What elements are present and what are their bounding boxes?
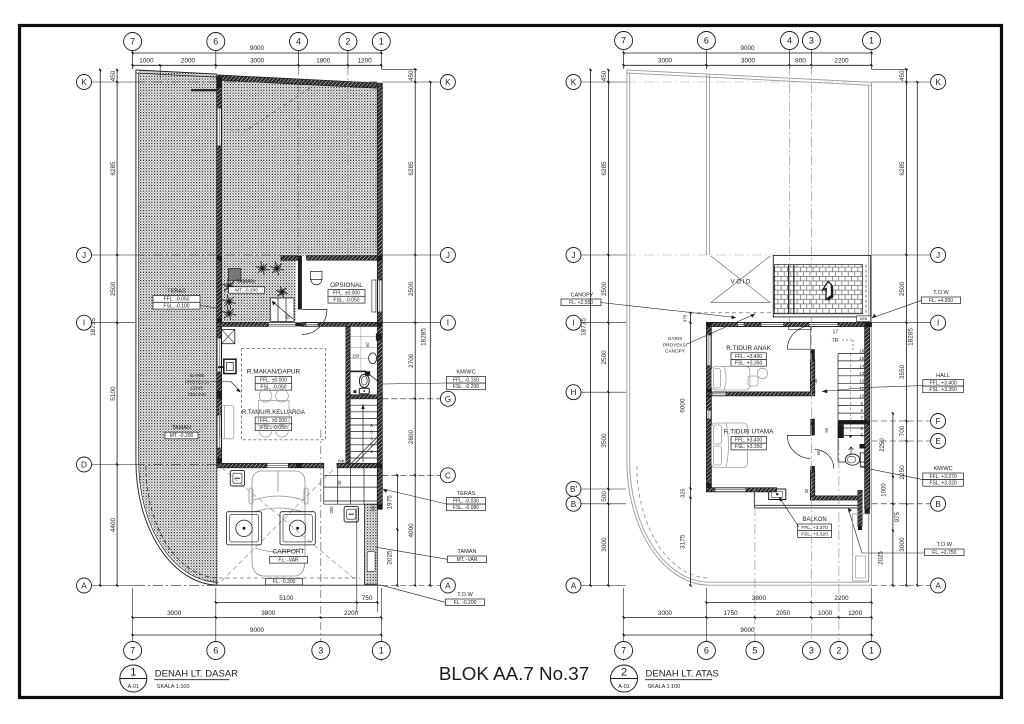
svg-text:3175: 3175 <box>680 534 687 549</box>
svg-text:4000: 4000 <box>408 523 415 538</box>
svg-text:6285: 6285 <box>601 161 608 176</box>
svg-text:K: K <box>445 78 451 87</box>
svg-text:6: 6 <box>704 36 709 46</box>
svg-text:CEILING: CEILING <box>188 392 207 397</box>
svg-text:9: 9 <box>861 401 864 406</box>
svg-text:2: 2 <box>836 646 841 656</box>
svg-text:150: 150 <box>352 354 360 359</box>
svg-text:375: 375 <box>683 314 688 322</box>
svg-text:300: 300 <box>371 504 376 512</box>
svg-text:5: 5 <box>752 646 757 656</box>
svg-text:3000: 3000 <box>741 58 756 65</box>
svg-text:C: C <box>445 471 451 480</box>
svg-text:PROYEKSI: PROYEKSI <box>185 379 209 384</box>
svg-text:J: J <box>82 251 86 260</box>
svg-text:1750: 1750 <box>723 610 738 617</box>
svg-text:2250: 2250 <box>899 465 906 480</box>
svg-text:SKALA 1:100: SKALA 1:100 <box>648 684 681 690</box>
svg-text:FL. +4.950: FL. +4.950 <box>929 298 953 304</box>
svg-text:50: 50 <box>286 314 291 319</box>
svg-text:FSL. -0.200: FSL. -0.200 <box>453 384 479 390</box>
svg-text:B: B <box>571 500 577 509</box>
svg-text:1000: 1000 <box>882 483 888 497</box>
svg-text:J: J <box>571 251 575 260</box>
svg-text:FL. -0.200: FL. -0.200 <box>454 600 477 606</box>
svg-text:OPSIONAL: OPSIONAL <box>330 282 363 289</box>
svg-text:3800: 3800 <box>752 595 767 602</box>
svg-text:450: 450 <box>601 70 608 81</box>
svg-text:1: 1 <box>379 37 384 47</box>
svg-text:A: A <box>445 582 451 591</box>
svg-text:30: 30 <box>804 488 809 493</box>
svg-text:4: 4 <box>787 36 792 46</box>
svg-text:K: K <box>81 78 87 87</box>
svg-text:FFL. -0.150: FFL. -0.150 <box>453 377 479 383</box>
svg-text:3000: 3000 <box>601 537 608 552</box>
svg-text:FL. -VAR: FL. -VAR <box>278 557 299 563</box>
svg-text:4400: 4400 <box>110 517 117 532</box>
svg-text:18285: 18285 <box>420 328 427 346</box>
svg-text:2500: 2500 <box>601 350 608 365</box>
svg-text:FSL. +3.350: FSL. +3.350 <box>735 361 763 367</box>
svg-text:6285: 6285 <box>899 161 906 176</box>
svg-text:MSN: MSN <box>860 317 868 321</box>
svg-text:1000: 1000 <box>818 610 833 617</box>
svg-text:F: F <box>936 417 941 426</box>
svg-text:16: 16 <box>859 349 865 354</box>
svg-text:B': B' <box>570 485 577 494</box>
svg-text:A: A <box>935 582 941 591</box>
svg-text:3000: 3000 <box>658 610 673 617</box>
svg-text:A: A <box>81 582 87 591</box>
svg-text:TAMAN: TAMAN <box>236 279 255 285</box>
svg-text:I: I <box>572 319 574 328</box>
svg-text:CANOPY: CANOPY <box>665 349 686 354</box>
svg-text:10: 10 <box>859 393 865 398</box>
svg-text:GARIS: GARIS <box>668 336 683 341</box>
svg-text:TAMAN: TAMAN <box>457 549 476 555</box>
svg-text:8: 8 <box>861 408 864 413</box>
svg-text:2: 2 <box>345 37 350 47</box>
svg-text:11: 11 <box>859 386 864 391</box>
svg-text:5100: 5100 <box>279 595 294 602</box>
svg-text:2025: 2025 <box>879 551 885 565</box>
svg-text:PROYEKSI: PROYEKSI <box>663 342 687 347</box>
svg-text:500: 500 <box>601 491 608 502</box>
svg-text:2250: 2250 <box>880 438 886 452</box>
svg-text:1200: 1200 <box>848 610 863 617</box>
svg-text:450: 450 <box>110 70 117 81</box>
svg-text:R.TIDUR UTAMA: R.TIDUR UTAMA <box>724 429 774 436</box>
svg-text:6: 6 <box>704 646 709 656</box>
svg-text:200: 200 <box>329 506 334 514</box>
svg-text:MT. -0.200: MT. -0.200 <box>235 288 258 294</box>
svg-text:R.MAKAN/DAPUR: R.MAKAN/DAPUR <box>247 369 301 376</box>
svg-text:A-01: A-01 <box>618 684 629 690</box>
svg-text:1800: 1800 <box>316 58 331 65</box>
svg-text:TAMAN: TAMAN <box>172 425 191 431</box>
svg-text:50: 50 <box>365 342 370 347</box>
svg-text:325: 325 <box>681 489 687 498</box>
svg-text:1: 1 <box>130 666 136 678</box>
svg-text:HALL: HALL <box>936 373 950 379</box>
svg-text:3550: 3550 <box>899 364 906 379</box>
svg-text:3000: 3000 <box>167 610 182 617</box>
svg-text:750: 750 <box>362 595 373 602</box>
svg-text:FFL. +3.370: FFL. +3.370 <box>930 474 957 480</box>
svg-text:14: 14 <box>859 364 865 369</box>
svg-text:450: 450 <box>899 70 906 81</box>
svg-text:H: H <box>571 388 577 397</box>
svg-text:7: 7 <box>130 37 135 47</box>
svg-text:3800: 3800 <box>261 610 276 617</box>
svg-text:6: 6 <box>213 646 218 656</box>
svg-text:4: 4 <box>296 37 301 47</box>
svg-text:J: J <box>936 251 940 260</box>
svg-text:3: 3 <box>318 646 323 656</box>
svg-text:700: 700 <box>899 425 906 436</box>
svg-text:9000: 9000 <box>740 627 755 634</box>
svg-text:A: A <box>571 582 577 591</box>
svg-text:2700: 2700 <box>408 353 415 368</box>
svg-text:4: 4 <box>370 436 373 441</box>
svg-text:FFL. +3.400: FFL. +3.400 <box>735 438 762 444</box>
svg-text:B: B <box>935 500 941 509</box>
svg-text:CARPORT: CARPORT <box>272 549 304 556</box>
svg-text:T.O.W: T.O.W <box>457 592 473 598</box>
svg-text:FFL. -0.030: FFL. -0.030 <box>453 498 479 504</box>
svg-text:DENAH LT. ATAS: DENAH LT. ATAS <box>646 669 719 680</box>
svg-text:6: 6 <box>861 426 864 431</box>
svg-text:J: J <box>446 251 450 260</box>
svg-text:SKALA 1:100: SKALA 1:100 <box>157 684 190 690</box>
svg-text:FFL. ±0.000: FFL. ±0.000 <box>260 378 287 384</box>
svg-text:3500: 3500 <box>601 433 608 448</box>
svg-text:BLOK AA.7 No.37: BLOK AA.7 No.37 <box>439 663 589 684</box>
svg-text:2200: 2200 <box>344 610 359 617</box>
svg-text:6: 6 <box>370 423 373 428</box>
svg-text:FSL. -0.050: FSL. -0.050 <box>333 297 359 303</box>
svg-text:7: 7 <box>130 646 135 656</box>
svg-text:KM/WC: KM/WC <box>456 370 475 376</box>
svg-text:I: I <box>83 319 85 328</box>
svg-text:TERAS: TERAS <box>457 491 476 497</box>
svg-text:R.TAMU/R.KELUARGA: R.TAMU/R.KELUARGA <box>242 410 305 416</box>
svg-text:15: 15 <box>859 356 865 361</box>
svg-text:E: E <box>935 437 941 446</box>
svg-text:FFL. ±0.000: FFL. ±0.000 <box>260 418 287 424</box>
svg-text:9000: 9000 <box>250 627 265 634</box>
svg-text:FSL. -0.100: FSL. -0.100 <box>163 303 189 309</box>
svg-text:V O I D: V O I D <box>731 280 751 286</box>
svg-text:T.O.W: T.O.W <box>937 542 953 548</box>
svg-text:K: K <box>935 78 941 87</box>
svg-text:800: 800 <box>795 58 806 65</box>
svg-text:1: 1 <box>869 646 874 656</box>
svg-text:2500: 2500 <box>408 281 415 296</box>
svg-text:7: 7 <box>621 646 626 656</box>
svg-text:2025: 2025 <box>386 550 393 565</box>
svg-text:30: 30 <box>337 480 342 485</box>
svg-text:7: 7 <box>621 36 626 46</box>
svg-text:BALKON: BALKON <box>802 517 826 523</box>
svg-text:9000: 9000 <box>740 45 755 52</box>
svg-text:FL. +2.750: FL. +2.750 <box>932 550 956 556</box>
svg-text:1: 1 <box>869 36 874 46</box>
svg-text:6285: 6285 <box>110 161 117 176</box>
svg-text:3000: 3000 <box>658 58 673 65</box>
svg-text:2: 2 <box>621 666 627 678</box>
svg-text:FFL. +3.400: FFL. +3.400 <box>930 380 957 386</box>
svg-text:FSL. -0.080: FSL. -0.080 <box>453 505 479 511</box>
svg-text:GARIS: GARIS <box>190 373 205 378</box>
svg-text:2050: 2050 <box>776 610 791 617</box>
svg-text:FSL. +3.350: FSL. +3.350 <box>735 444 763 450</box>
svg-text:3000: 3000 <box>899 537 906 552</box>
svg-text:1975: 1975 <box>386 495 393 510</box>
svg-text:450: 450 <box>408 70 415 81</box>
svg-text:18285: 18285 <box>907 328 914 346</box>
svg-text:I: I <box>447 319 449 328</box>
svg-text:FL. -0.300: FL. -0.300 <box>273 579 296 585</box>
svg-text:975: 975 <box>895 512 901 523</box>
svg-text:K: K <box>571 78 577 87</box>
svg-text:6: 6 <box>213 37 218 47</box>
svg-text:6000: 6000 <box>680 398 687 413</box>
svg-text:2: 2 <box>370 449 373 454</box>
svg-text:2800: 2800 <box>408 430 415 445</box>
svg-text:5: 5 <box>861 433 864 438</box>
svg-text:12: 12 <box>859 378 865 383</box>
svg-text:2500: 2500 <box>110 281 117 296</box>
svg-text:17: 17 <box>833 329 839 335</box>
svg-text:FFL. -0.050: FFL. -0.050 <box>164 297 190 303</box>
svg-text:1200: 1200 <box>357 58 372 65</box>
svg-text:T.O.W: T.O.W <box>933 290 949 296</box>
svg-text:2500: 2500 <box>601 281 608 296</box>
svg-text:FSL. +3.320: FSL. +3.320 <box>929 481 957 487</box>
svg-text:FFL. +3.370: FFL. +3.370 <box>801 525 828 531</box>
svg-text:FFL. ±0.000: FFL. ±0.000 <box>333 291 360 297</box>
svg-text:A-01: A-01 <box>128 684 139 690</box>
svg-text:5100: 5100 <box>110 386 117 401</box>
svg-text:30: 30 <box>813 378 818 383</box>
svg-text:I: I <box>937 319 939 328</box>
svg-text:TR: TR <box>832 338 839 344</box>
svg-text:D: D <box>81 461 87 470</box>
svg-text:2500: 2500 <box>899 281 906 296</box>
svg-text:2200: 2200 <box>834 58 849 65</box>
svg-text:2000: 2000 <box>181 58 196 65</box>
svg-text:2200: 2200 <box>834 595 849 602</box>
svg-text:R.TIDUR ANAK: R.TIDUR ANAK <box>726 345 771 352</box>
svg-text:9000: 9000 <box>250 45 265 52</box>
svg-text:3: 3 <box>809 36 814 46</box>
svg-text:5: 5 <box>370 429 373 434</box>
svg-text:13: 13 <box>859 371 865 376</box>
svg-text:DENAH LT. DASAR: DENAH LT. DASAR <box>155 669 238 680</box>
svg-text:COVE: COVE <box>190 386 203 391</box>
svg-text:6285: 6285 <box>408 161 415 176</box>
svg-text:NK: NK <box>338 459 345 464</box>
svg-text:50: 50 <box>824 427 829 432</box>
svg-text:FSL. +3.320: FSL. +3.320 <box>801 532 828 538</box>
svg-text:FL. +2.550: FL. +2.550 <box>569 300 593 306</box>
svg-text:50: 50 <box>816 450 821 455</box>
svg-text:1: 1 <box>379 646 384 656</box>
svg-text:FSL. +3.350: FSL. +3.350 <box>929 387 957 393</box>
svg-text:3000: 3000 <box>250 58 265 65</box>
svg-text:G: G <box>445 395 451 404</box>
svg-text:MT. -VAR: MT. -VAR <box>456 557 477 563</box>
svg-text:18735: 18735 <box>581 318 588 336</box>
svg-text:7: 7 <box>861 416 864 421</box>
svg-text:KM/WC: KM/WC <box>933 466 952 472</box>
svg-text:TERAS: TERAS <box>167 289 186 295</box>
svg-text:FFL. +3.400: FFL. +3.400 <box>735 354 762 360</box>
svg-text:3: 3 <box>809 646 814 656</box>
svg-text:MT. -0.200: MT. -0.200 <box>170 433 194 439</box>
svg-text:1000: 1000 <box>139 58 154 65</box>
